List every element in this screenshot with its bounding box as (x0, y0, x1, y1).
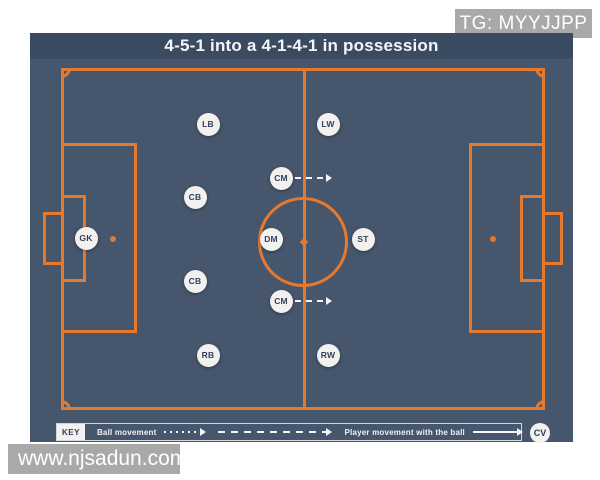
player-movement-arrow-icon (295, 174, 332, 182)
dashed-line (295, 177, 326, 179)
ball-movement-dotted-arrow-icon (164, 428, 206, 436)
player-marker-rb: RB (197, 344, 220, 367)
site-watermark-text: www.njsadun.com (18, 447, 187, 471)
player-marker-st: ST (352, 228, 375, 251)
player-movement-with-ball-solid-arrow-icon (473, 428, 523, 436)
player-marker-cm: CM (270, 290, 293, 313)
arrowhead-icon (326, 297, 332, 305)
player-marker-dm: DM (260, 228, 283, 251)
player-marker-lw: LW (317, 113, 340, 136)
key-ball-movement-label: Ball movement (97, 428, 157, 437)
player-marker-cm: CM (270, 167, 293, 190)
player-marker-rw: RW (317, 344, 340, 367)
arrowhead-icon (326, 428, 332, 436)
tactics-board: 4-5-1 into a 4-1-4-1 in possession GKLBC… (30, 33, 573, 442)
arrowhead-icon (200, 428, 206, 436)
solid-line (473, 431, 517, 433)
cv-logo-text: CV (534, 428, 547, 438)
key-label: KEY (57, 424, 85, 440)
arrowhead-icon (326, 174, 332, 182)
player-marker-lb: LB (197, 113, 220, 136)
dashed-line (218, 431, 326, 433)
site-watermark: www.njsadun.com (8, 444, 180, 474)
player-movement-dashed-arrow-icon (218, 428, 332, 436)
player-movement-arrow-icon (295, 297, 332, 305)
key-player-movement-with-ball-label: Player movement with the ball (344, 428, 465, 437)
arrowhead-icon (517, 428, 523, 436)
player-marker-cb: CB (184, 186, 207, 209)
page: TG: MYYJJPP 4-5-1 into a 4-1-4-1 in poss… (0, 0, 600, 480)
players-layer: GKLBCBCBRBLWCMDMCMRWST (30, 33, 573, 442)
key-legend: KEY Ball movement Player movement with t… (56, 423, 522, 441)
player-marker-cb: CB (184, 270, 207, 293)
dashed-line (295, 300, 326, 302)
player-marker-gk: GK (75, 227, 98, 250)
dotted-line (164, 431, 200, 433)
cv-logo: CV (530, 423, 550, 443)
tg-watermark-text: TG: MYYJJPP (460, 13, 588, 35)
